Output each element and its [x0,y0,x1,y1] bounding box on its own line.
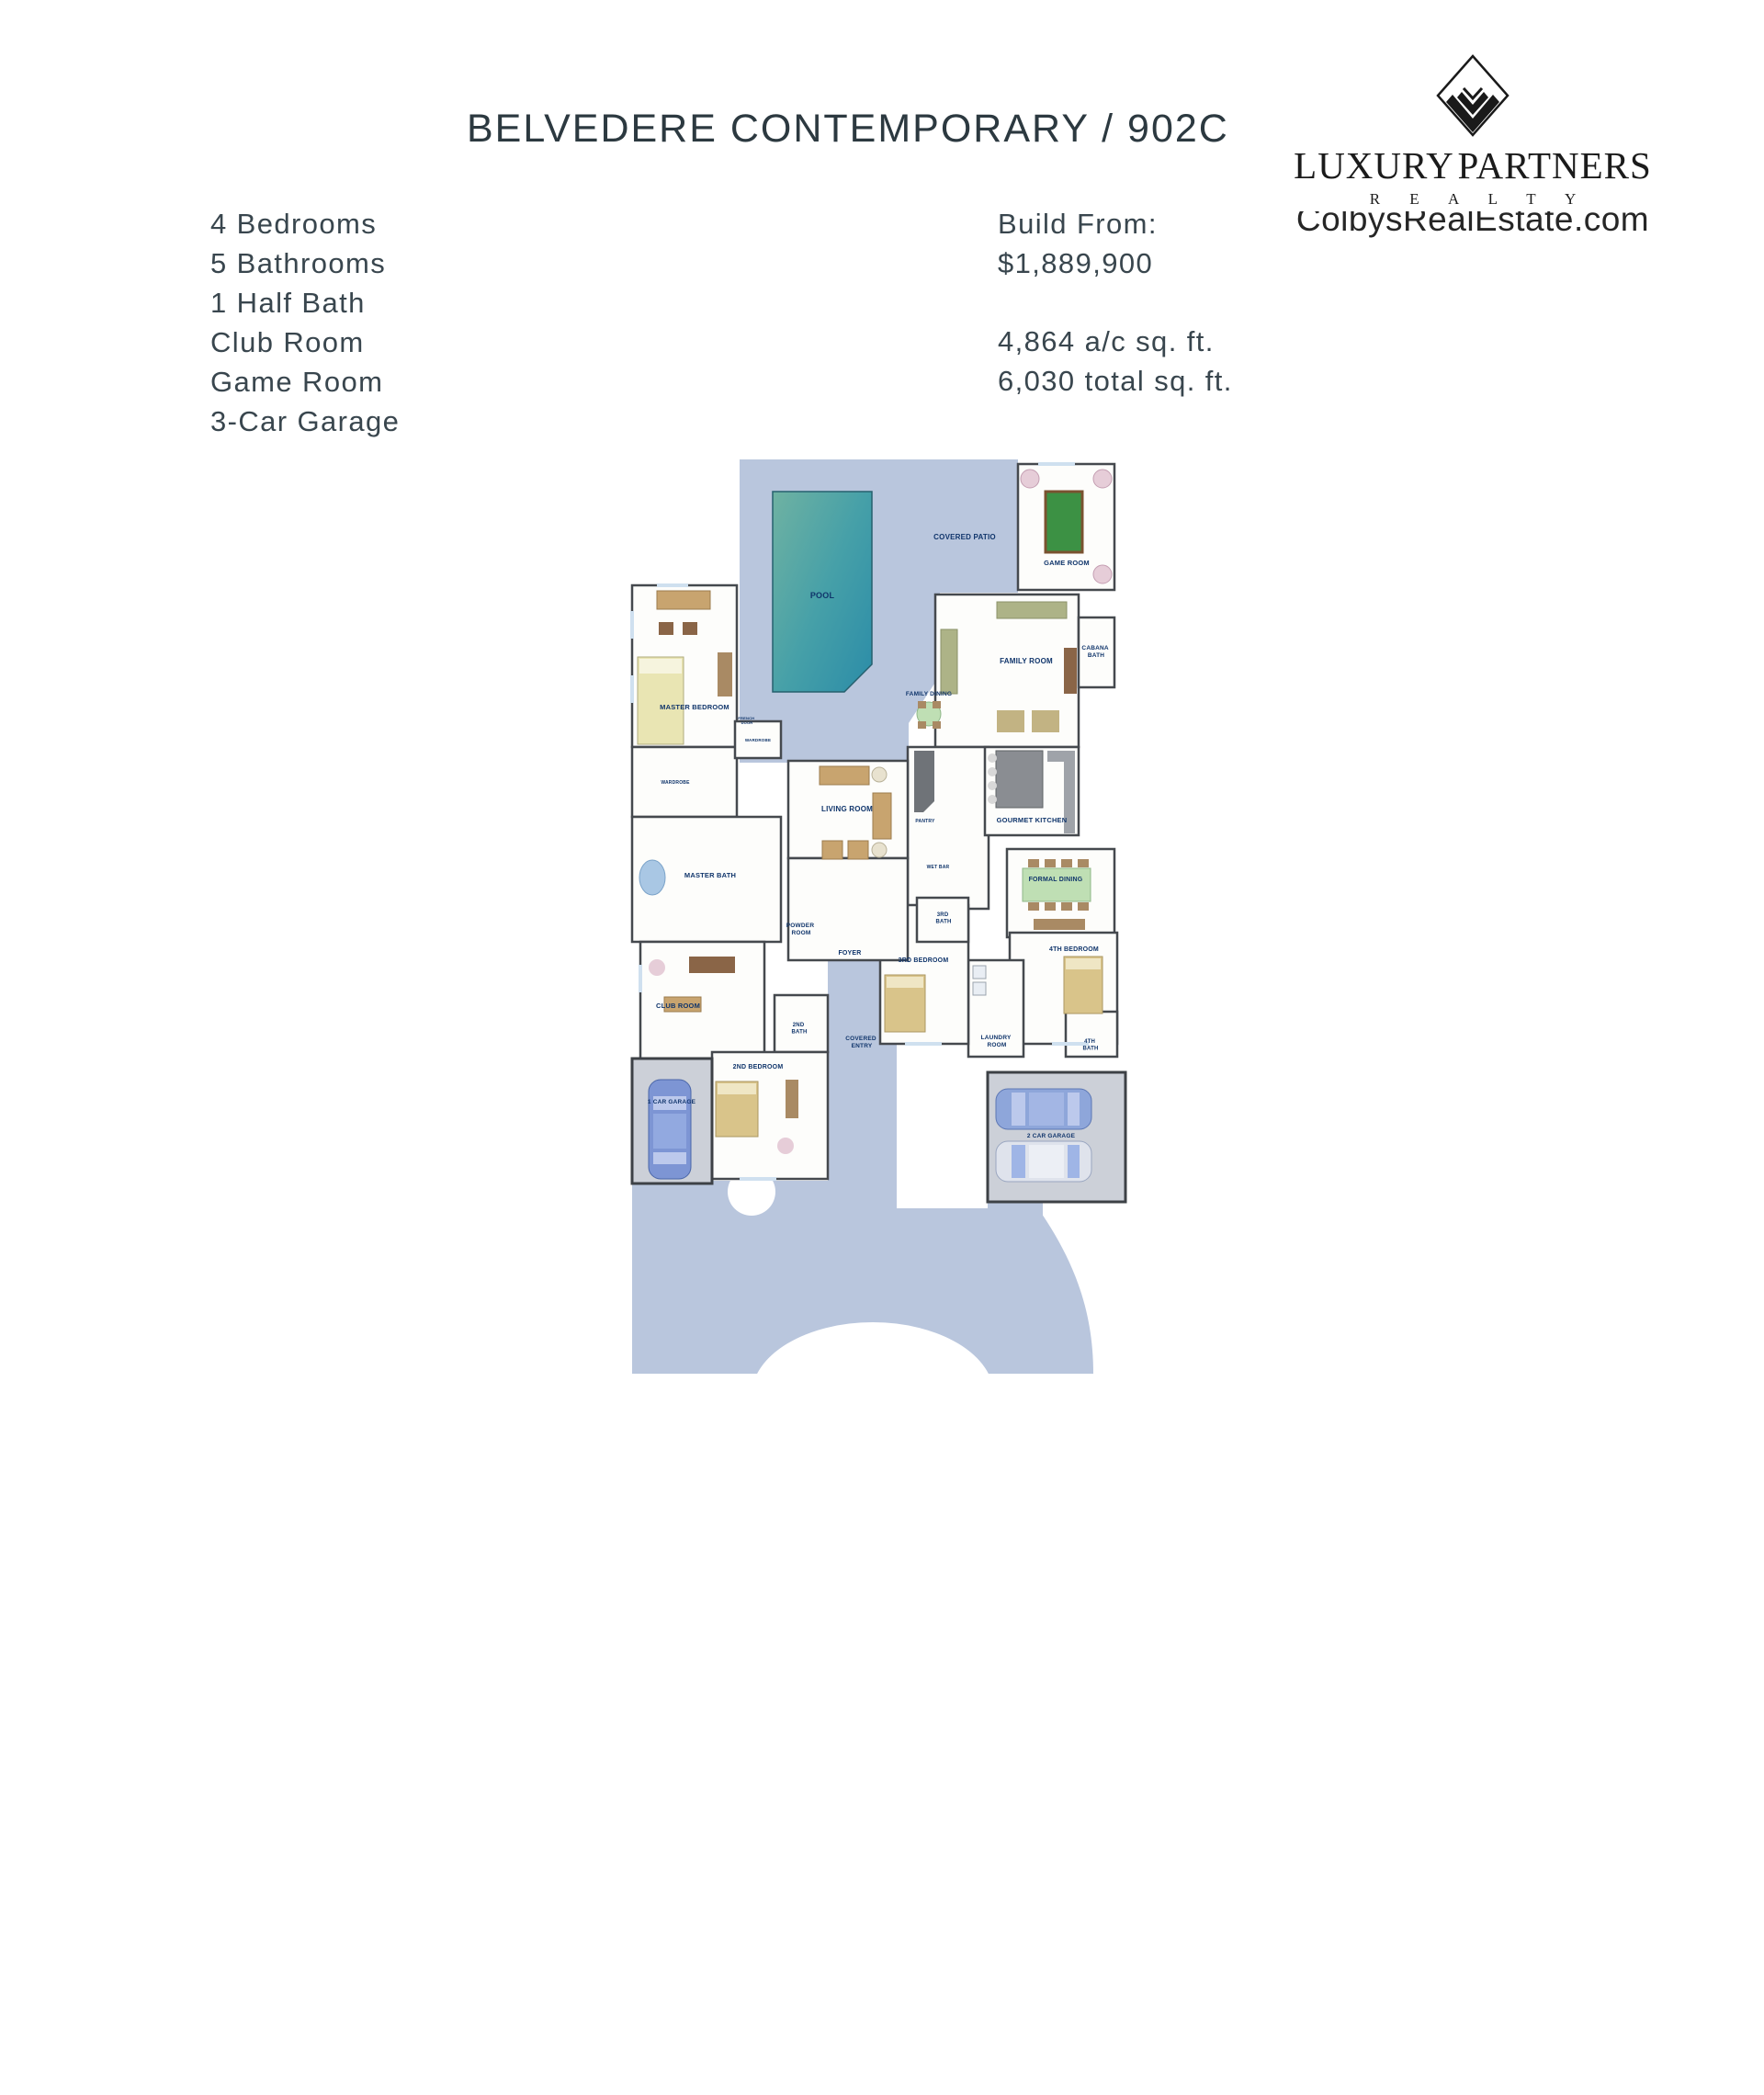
label-4th-bedroom: 4TH BEDROOM [1049,946,1099,953]
feature-garage: 3-Car Garage [210,402,400,441]
room-foyer-powder [788,858,908,960]
feature-bathrooms: 5 Bathrooms [210,243,400,283]
label-pantry: PANTRY [915,819,935,824]
label-wet-bar: WET BAR [927,865,950,870]
build-from-label: Build From: [998,204,1233,243]
label-1car-garage: 1 CAR GARAGE [648,1099,696,1105]
watermark: ColbysRealEstate.com [1271,211,1675,239]
label-3rd-bedroom: 3RD BEDROOM [899,957,949,964]
car-1 [649,1080,691,1179]
label-pool: POOL [810,591,835,600]
label-covered-patio: COVERED PATIO [933,533,996,541]
feature-half-bath: 1 Half Bath [210,283,400,323]
flyer-page: BELVEDERE CONTEMPORARY / 902C LUXURY PAR… [0,0,1764,2095]
bathtub [639,860,665,895]
price-value: $1,889,900 [998,243,1233,283]
brand-logo: LUXURY PARTNERS R E A L T Y ColbysRealEs… [1271,53,1675,209]
feature-club-room: Club Room [210,323,400,362]
label-family-dining: FAMILY DINING [906,691,952,697]
label-formal-dining: FORMAL DINING [1029,877,1083,883]
label-game-room: GAME ROOM [1044,559,1090,567]
feature-bedrooms: 4 Bedrooms [210,204,400,243]
floor-plan: POOL COVERED PATIO GAME ROOM CABANA BATH… [602,446,1153,1374]
car-2 [996,1089,1091,1129]
label-wardrobe1: WARDROBE [661,780,690,786]
label-club-room: CLUB ROOM [656,1002,700,1010]
formal-dining-table [1023,868,1091,901]
label-master-bath: MASTER BATH [684,871,736,879]
pool-table [1046,492,1082,552]
lounge-chair [1021,470,1039,488]
label-2car-garage: 2 CAR GARAGE [1027,1133,1076,1139]
label-master-bedroom: MASTER BEDROOM [660,703,729,711]
label-family-room: FAMILY ROOM [1000,657,1053,665]
spacer [998,283,1233,322]
label-2nd-bath: 2ND BATH [791,1023,807,1036]
watermark-clip: ColbysRealEstate.com [1271,211,1675,241]
brand-name: LUXURY PARTNERS [1271,143,1675,187]
label-kitchen: GOURMET KITCHEN [997,816,1068,824]
label-2nd-bedroom: 2ND BEDROOM [733,1064,784,1070]
total-sqft: 6,030 total sq. ft. [998,361,1233,401]
kitchen-island [996,751,1043,808]
master-sofa [657,591,710,609]
car-3 [996,1141,1091,1182]
label-4th-bath: 4TH BATH [1082,1039,1098,1052]
page-title: BELVEDERE CONTEMPORARY / 902C [467,107,1229,152]
label-living-room: LIVING ROOM [821,805,873,813]
lounge-chair [1093,470,1112,488]
feature-list: 4 Bedrooms 5 Bathrooms 1 Half Bath Club … [210,204,400,441]
diamond-logo-icon [1435,53,1510,138]
pricing-block: Build From: $1,889,900 4,864 a/c sq. ft.… [998,204,1233,401]
ac-sqft: 4,864 a/c sq. ft. [998,322,1233,361]
label-wardrobe2: WARDROBE [745,738,771,742]
label-3rd-bath: 3RD BATH [935,912,951,925]
feature-game-room: Game Room [210,362,400,402]
label-foyer: FOYER [838,950,861,957]
lounge-chair [1093,565,1112,583]
brand-subtitle: R E A L T Y [1271,190,1675,209]
